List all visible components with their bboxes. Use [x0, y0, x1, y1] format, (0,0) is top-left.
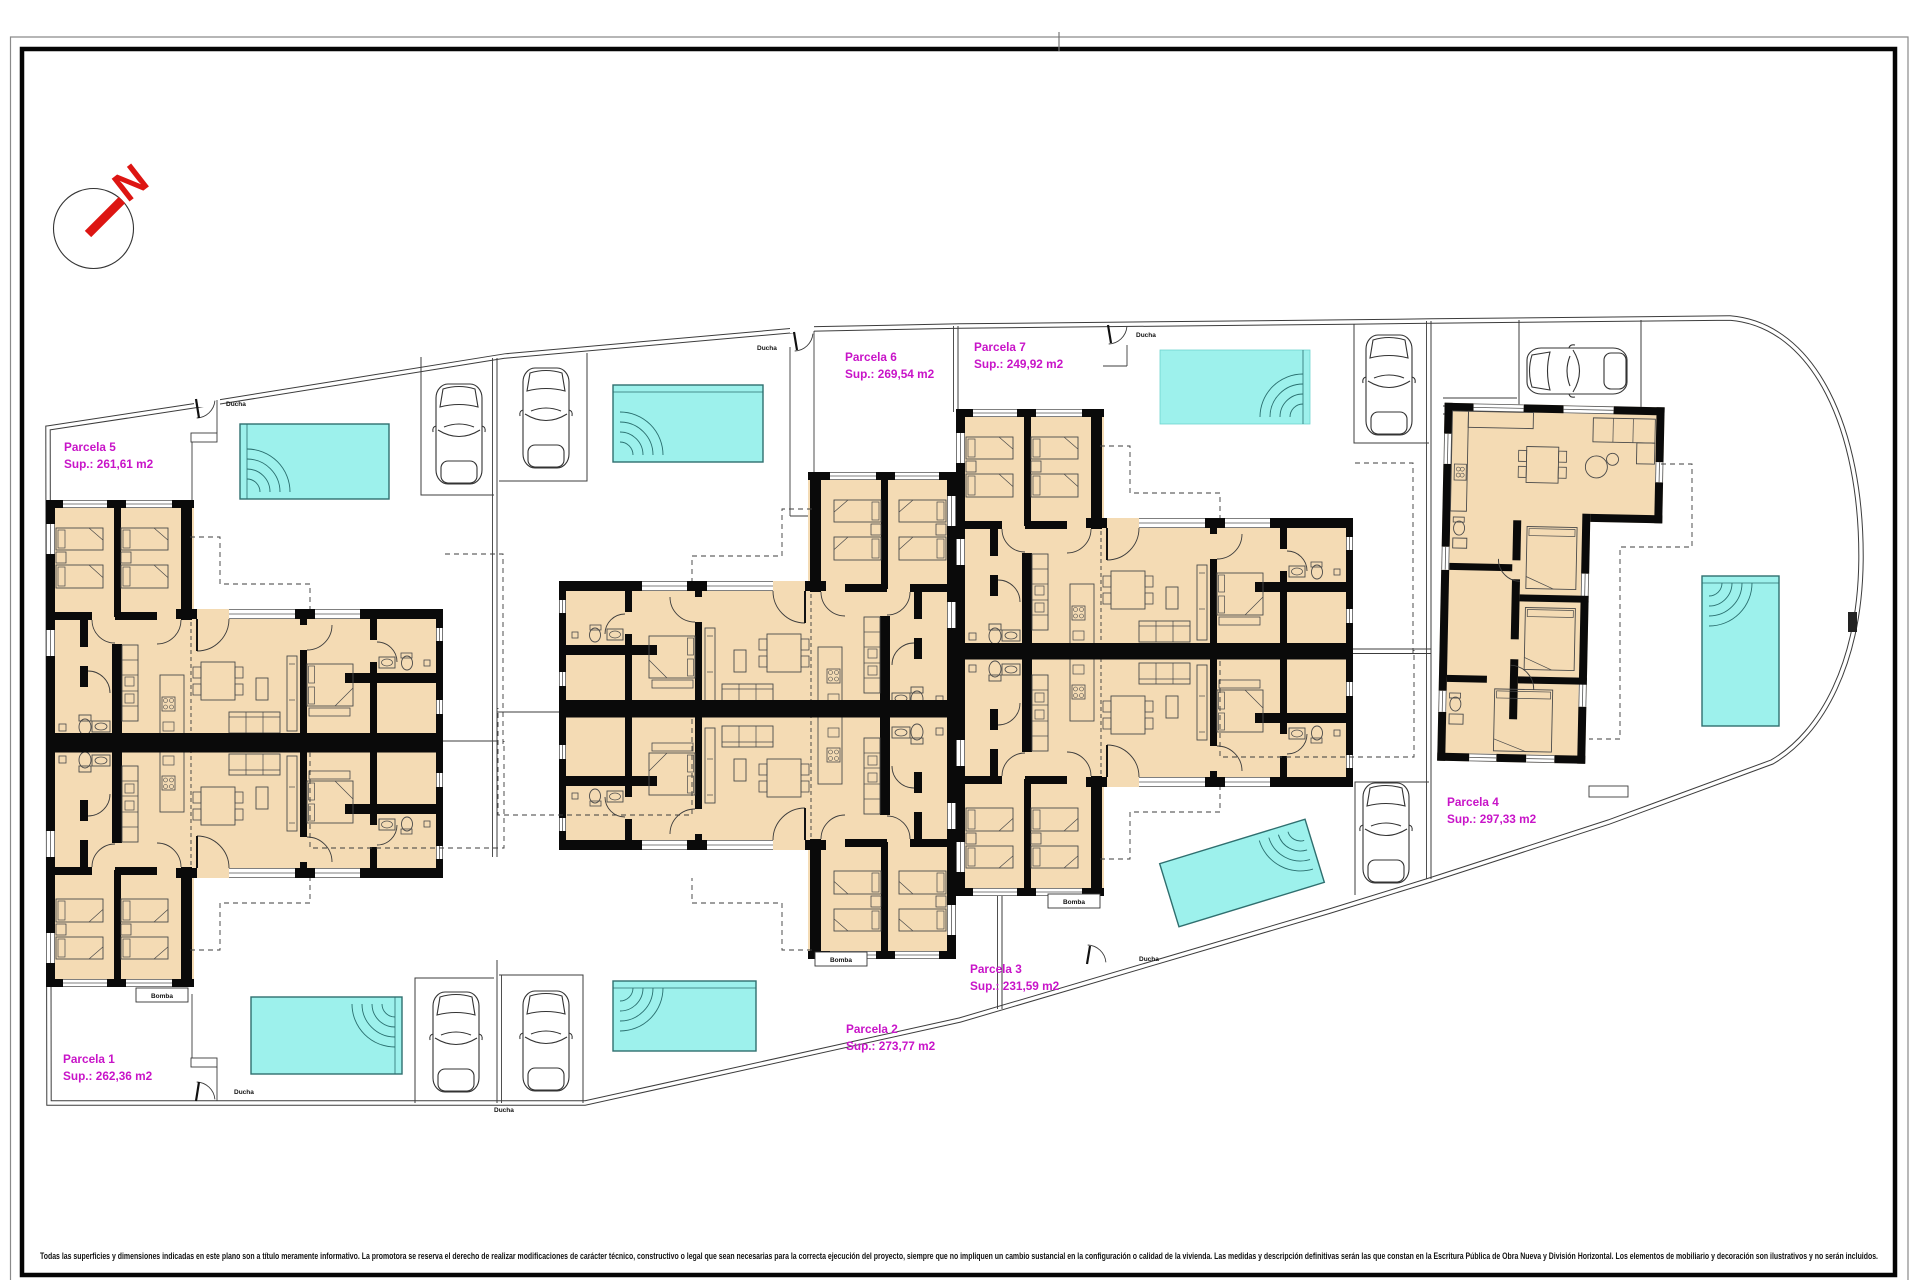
svg-text:Sup.: 273,77 m2: Sup.: 273,77 m2 [846, 1039, 936, 1053]
svg-text:Sup.: 262,36 m2: Sup.: 262,36 m2 [63, 1069, 153, 1083]
svg-text:Parcela 5: Parcela 5 [64, 440, 116, 454]
svg-text:Sup.: 249,92 m2: Sup.: 249,92 m2 [974, 357, 1064, 371]
svg-text:Ducha: Ducha [234, 1089, 254, 1096]
svg-text:Sup.: 231,59 m2: Sup.: 231,59 m2 [970, 979, 1060, 993]
svg-text:Bomba: Bomba [1063, 899, 1085, 906]
svg-text:Sup.: 297,33 m2: Sup.: 297,33 m2 [1447, 812, 1537, 826]
svg-text:Bomba: Bomba [151, 993, 173, 1000]
svg-text:Sup.: 261,61 m2: Sup.: 261,61 m2 [64, 457, 154, 471]
svg-text:Parcela 2: Parcela 2 [846, 1022, 898, 1036]
svg-text:Ducha: Ducha [226, 401, 246, 408]
svg-text:Ducha: Ducha [494, 1107, 514, 1114]
svg-text:Parcela 4: Parcela 4 [1447, 795, 1499, 809]
svg-text:Parcela 6: Parcela 6 [845, 350, 897, 364]
svg-text:Ducha: Ducha [757, 345, 777, 352]
svg-text:Ducha: Ducha [1136, 332, 1156, 339]
svg-text:Todas las superficies y dimens: Todas las superficies y dimensiones indi… [40, 1251, 1878, 1262]
svg-text:Parcela 3: Parcela 3 [970, 962, 1022, 976]
svg-text:Bomba: Bomba [830, 957, 852, 964]
svg-text:Parcela 1: Parcela 1 [63, 1052, 115, 1066]
svg-text:Parcela 7: Parcela 7 [974, 340, 1026, 354]
svg-text:Ducha: Ducha [1139, 956, 1159, 963]
svg-text:Sup.: 269,54 m2: Sup.: 269,54 m2 [845, 367, 935, 381]
